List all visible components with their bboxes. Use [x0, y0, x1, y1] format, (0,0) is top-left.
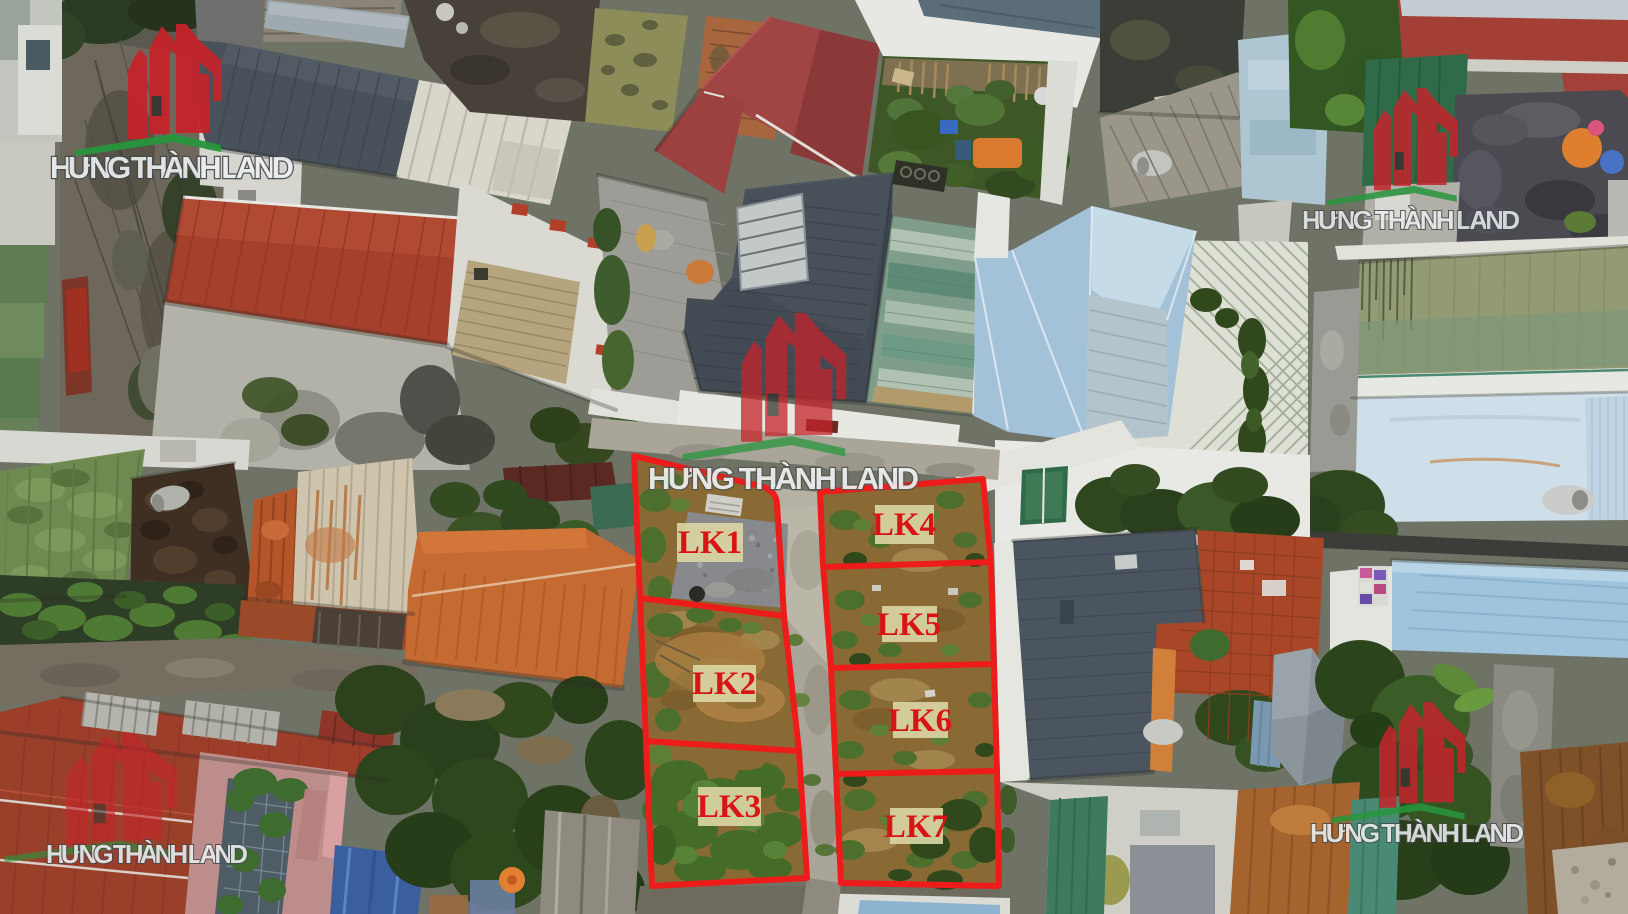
svg-text:HƯNG THÀNH LAND: HƯNG THÀNH LAND — [648, 461, 919, 496]
svg-text:LK6: LK6 — [888, 703, 952, 739]
svg-text:LK1: LK1 — [678, 525, 742, 561]
svg-text:LK3: LK3 — [697, 789, 761, 825]
svg-text:HƯNG THÀNH LAND: HƯNG THÀNH LAND — [50, 150, 294, 185]
svg-text:LK2: LK2 — [692, 666, 756, 702]
svg-text:HƯNG THÀNH LAND: HƯNG THÀNH LAND — [1310, 818, 1524, 848]
svg-text:LK7: LK7 — [884, 809, 948, 845]
svg-text:LK5: LK5 — [877, 607, 941, 643]
svg-text:HƯNG THÀNH LAND: HƯNG THÀNH LAND — [1302, 205, 1520, 235]
svg-text:HƯNG THÀNH LAND: HƯNG THÀNH LAND — [46, 839, 248, 869]
svg-text:LK4: LK4 — [872, 507, 936, 543]
